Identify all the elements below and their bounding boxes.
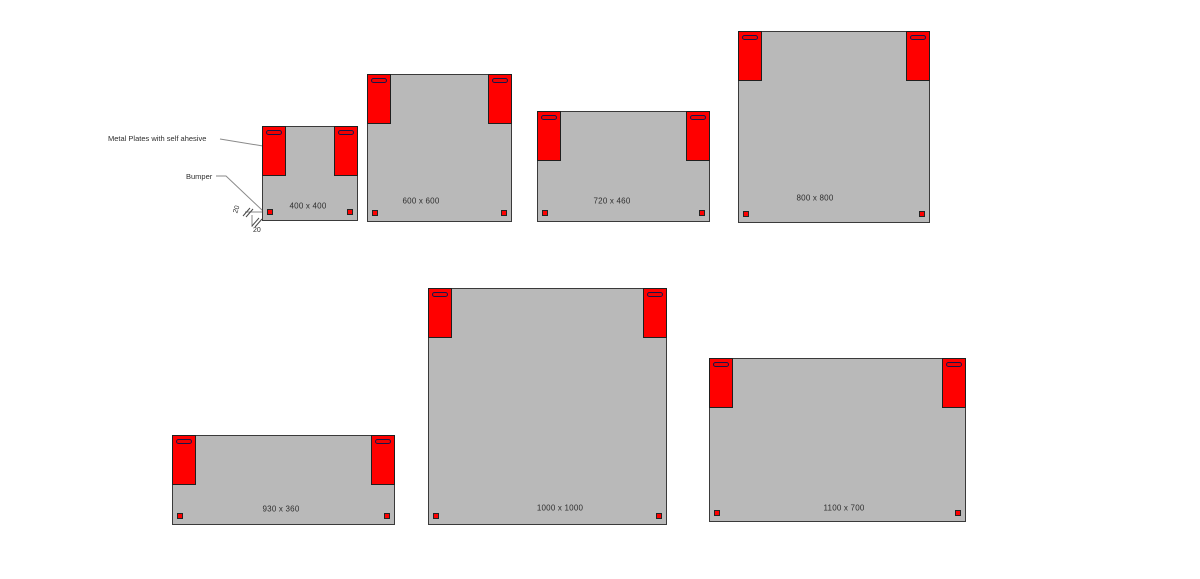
metal-plate-top-left — [537, 111, 561, 161]
metal-plate-top-right — [906, 31, 930, 81]
bumper-bottom-right — [919, 211, 925, 217]
panel-800x800: 800 x 800 — [738, 31, 930, 223]
metal-plates-annotation: Metal Plates with self ahesive — [108, 134, 206, 143]
plate-slot — [266, 130, 282, 135]
plate-slot — [690, 115, 706, 120]
panel-size-label: 1100 x 700 — [824, 504, 865, 513]
panel-600x600: 600 x 600 — [367, 74, 512, 222]
plate-slot — [910, 35, 926, 40]
panel-size-label: 600 x 600 — [403, 197, 440, 206]
metal-plate-top-left — [262, 126, 286, 176]
metal-plate-top-right — [942, 358, 966, 408]
metal-plate-top-left — [172, 435, 196, 485]
panel-size-label: 930 x 360 — [263, 505, 300, 514]
plate-slot — [432, 292, 448, 297]
dim-tick — [255, 219, 262, 227]
bumper-bottom-right — [699, 210, 705, 216]
dim-tick — [243, 208, 250, 216]
bumper-bottom-right — [501, 210, 507, 216]
metal-plate-top-right — [643, 288, 667, 338]
plate-slot — [541, 115, 557, 120]
metal-plate-top-right — [686, 111, 710, 161]
plate-slot — [946, 362, 962, 367]
bumper-bottom-right — [347, 209, 353, 215]
bumper-bottom-left — [743, 211, 749, 217]
metal-plate-top-left — [709, 358, 733, 408]
dim-tick — [246, 209, 253, 217]
plate-slot — [338, 130, 354, 135]
metal-plate-top-right — [334, 126, 358, 176]
bumper-bottom-left — [433, 513, 439, 519]
metal-plate-top-right — [488, 74, 512, 124]
panel-1000x1000: 1000 x 1000 — [428, 288, 667, 525]
plate-slot — [492, 78, 508, 83]
metal-plate-top-left — [738, 31, 762, 81]
panel-size-label: 800 x 800 — [797, 194, 834, 203]
panel-1100x700: 1100 x 700 — [709, 358, 966, 522]
panel-size-label: 400 x 400 — [290, 202, 327, 211]
bumper-bottom-right — [384, 513, 390, 519]
plate-slot — [375, 439, 391, 444]
bumper-bottom-left — [177, 513, 183, 519]
panel-720x460: 720 x 460 — [537, 111, 710, 222]
dim-20-left: 20 — [232, 205, 241, 215]
metal-plate-top-left — [428, 288, 452, 338]
dim-20-bottom: 20 — [253, 227, 261, 234]
panel-size-label: 720 x 460 — [594, 197, 631, 206]
bumper-annotation: Bumper — [186, 172, 212, 181]
bumper-bottom-left — [714, 510, 720, 516]
plate-slot — [371, 78, 387, 83]
dim-tick — [252, 218, 259, 226]
bumper-bottom-left — [372, 210, 378, 216]
metal-plates-leader-line — [220, 139, 266, 147]
plate-slot — [647, 292, 663, 297]
diagram-canvas: Metal Plates with self ahesive Bumper 20… — [0, 0, 1200, 579]
plate-slot — [176, 439, 192, 444]
plate-slot — [713, 362, 729, 367]
panel-size-label: 1000 x 1000 — [537, 504, 583, 513]
panel-400x400: 400 x 400 — [262, 126, 358, 221]
panel-930x360: 930 x 360 — [172, 435, 395, 525]
metal-plate-top-right — [371, 435, 395, 485]
metal-plate-top-left — [367, 74, 391, 124]
bumper-bottom-right — [656, 513, 662, 519]
plate-slot — [742, 35, 758, 40]
bumper-bottom-right — [955, 510, 961, 516]
bumper-bottom-left — [267, 209, 273, 215]
bumper-bottom-left — [542, 210, 548, 216]
